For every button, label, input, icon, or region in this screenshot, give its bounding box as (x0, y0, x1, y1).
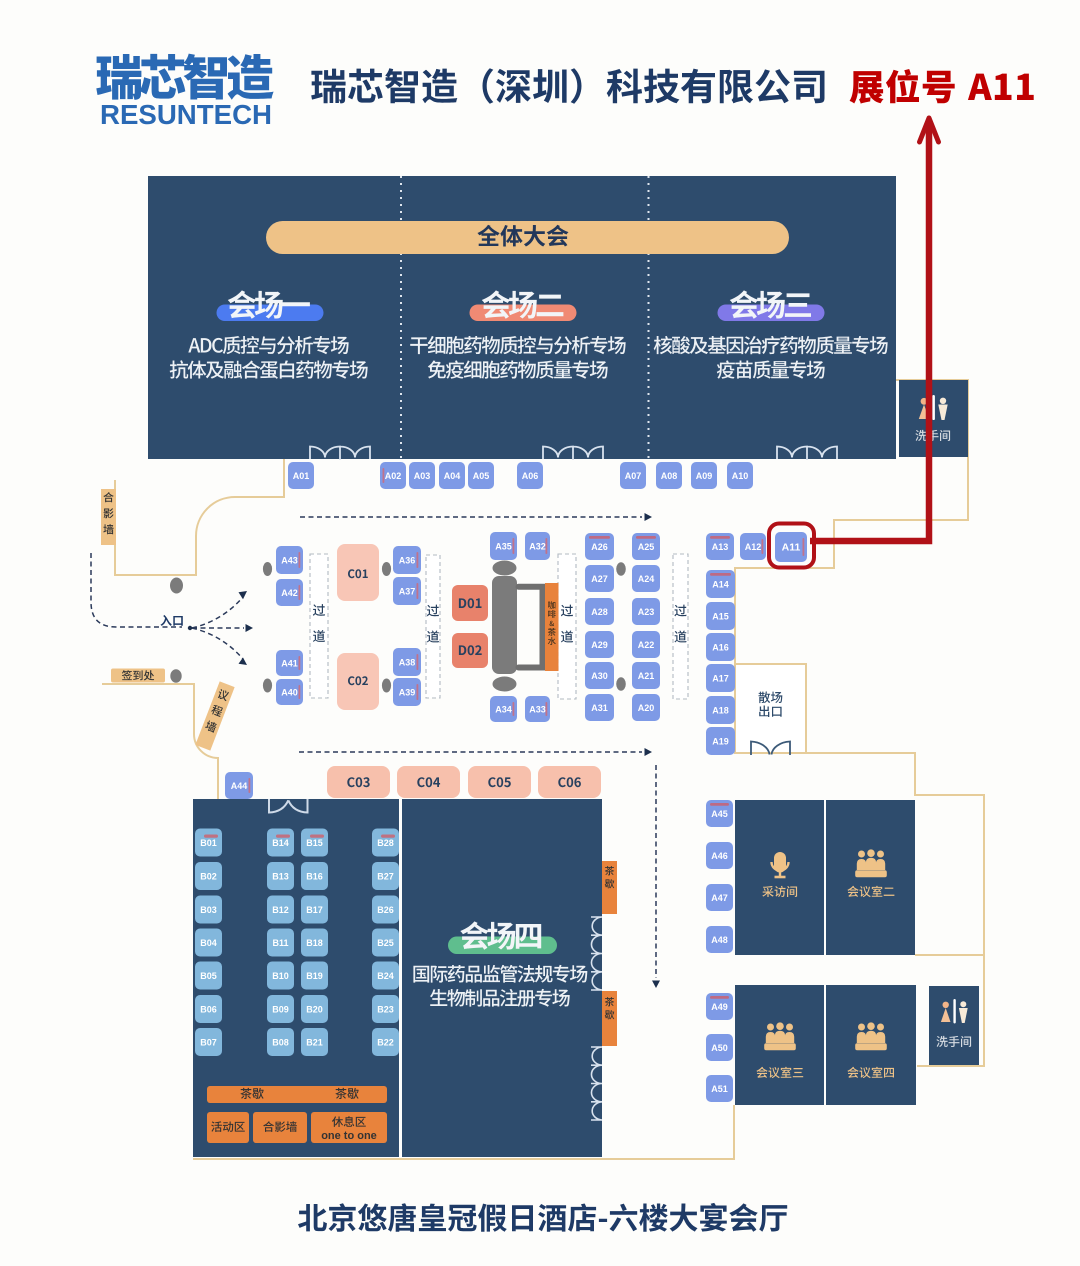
svg-text:A28: A28 (591, 607, 608, 617)
svg-text:A13: A13 (712, 542, 729, 552)
svg-text:one to one: one to one (321, 1130, 377, 1142)
svg-text:A45: A45 (711, 809, 728, 819)
svg-text:A49: A49 (711, 1002, 728, 1012)
svg-text:A26: A26 (591, 542, 608, 552)
svg-text:A46: A46 (711, 851, 728, 861)
svg-text:A35: A35 (495, 541, 512, 551)
svg-text:A24: A24 (638, 574, 655, 584)
svg-text:A44: A44 (231, 781, 248, 791)
svg-text:B15: B15 (306, 838, 323, 848)
svg-text:A03: A03 (414, 471, 431, 481)
svg-text:A06: A06 (522, 471, 539, 481)
svg-text:A41: A41 (281, 658, 298, 668)
svg-text:A17: A17 (712, 673, 729, 683)
svg-text:A43: A43 (281, 555, 298, 565)
svg-text:A31: A31 (591, 703, 608, 713)
svg-text:A42: A42 (281, 588, 298, 598)
svg-text:A33: A33 (529, 704, 546, 714)
svg-text:B02: B02 (200, 871, 217, 881)
svg-text:A51: A51 (711, 1084, 728, 1094)
svg-text:B09: B09 (272, 1004, 289, 1014)
svg-text:A50: A50 (711, 1043, 728, 1053)
svg-text:A39: A39 (399, 687, 416, 697)
svg-text:B03: B03 (200, 905, 217, 915)
svg-text:A09: A09 (696, 471, 713, 481)
svg-text:A34: A34 (495, 704, 512, 714)
svg-text:B20: B20 (306, 1004, 323, 1014)
svg-text:A01: A01 (293, 471, 310, 481)
svg-text:B26: B26 (377, 905, 394, 915)
svg-text:A20: A20 (638, 703, 655, 713)
svg-text:B08: B08 (272, 1037, 289, 1047)
svg-text:RESUNTECH: RESUNTECH (100, 99, 272, 130)
svg-text:A21: A21 (638, 671, 655, 681)
svg-text:A32: A32 (529, 541, 546, 551)
svg-text:B14: B14 (272, 838, 289, 848)
svg-text:B22: B22 (377, 1037, 394, 1047)
svg-text:B25: B25 (377, 938, 394, 948)
svg-text:B10: B10 (272, 971, 289, 981)
svg-text:A11: A11 (782, 541, 801, 553)
svg-text:A36: A36 (399, 555, 416, 565)
svg-text:A48: A48 (711, 935, 728, 945)
svg-text:A10: A10 (732, 471, 749, 481)
svg-text:A18: A18 (712, 705, 729, 715)
svg-text:B17: B17 (306, 905, 323, 915)
svg-text:A07: A07 (625, 471, 642, 481)
svg-text:A04: A04 (444, 471, 461, 481)
svg-text:B13: B13 (272, 871, 289, 881)
svg-text:A14: A14 (712, 579, 729, 589)
svg-text:A19: A19 (712, 736, 729, 746)
svg-text:B24: B24 (377, 971, 394, 981)
svg-text:B21: B21 (306, 1037, 323, 1047)
svg-text:B04: B04 (200, 938, 217, 948)
svg-text:A29: A29 (591, 640, 608, 650)
svg-text:A40: A40 (281, 687, 298, 697)
svg-text:A47: A47 (711, 893, 728, 903)
svg-text:A25: A25 (638, 542, 655, 552)
svg-text:B07: B07 (200, 1037, 217, 1047)
svg-text:A16: A16 (712, 642, 729, 652)
svg-text:A23: A23 (638, 607, 655, 617)
svg-text:A37: A37 (399, 586, 416, 596)
svg-text:A15: A15 (712, 611, 729, 621)
svg-text:A05: A05 (473, 471, 490, 481)
svg-text:B16: B16 (306, 871, 323, 881)
svg-text:B19: B19 (306, 971, 323, 981)
svg-text:A08: A08 (661, 471, 678, 481)
svg-text:A22: A22 (638, 640, 655, 650)
svg-text:B27: B27 (377, 871, 394, 881)
svg-text:B23: B23 (377, 1004, 394, 1014)
svg-text:B01: B01 (200, 838, 217, 848)
svg-text:A02: A02 (385, 471, 402, 481)
svg-text:A27: A27 (591, 574, 608, 584)
svg-text:B28: B28 (377, 838, 394, 848)
svg-text:B06: B06 (200, 1004, 217, 1014)
svg-text:B12: B12 (272, 905, 289, 915)
svg-text:B05: B05 (200, 971, 217, 981)
svg-text:A30: A30 (591, 671, 608, 681)
svg-text:B11: B11 (272, 938, 288, 948)
svg-text:A38: A38 (399, 657, 416, 667)
svg-text:A12: A12 (745, 542, 762, 552)
svg-text:B18: B18 (306, 938, 323, 948)
